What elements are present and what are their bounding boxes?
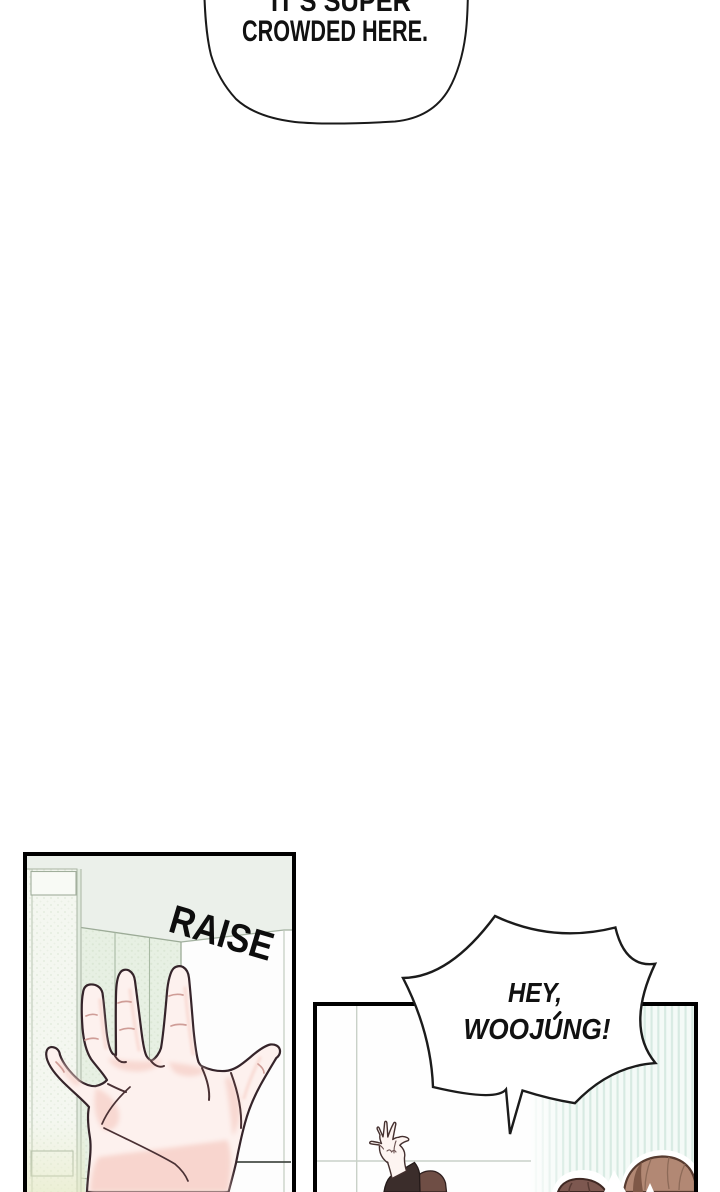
svg-text:CROWDED HERE.: CROWDED HERE. <box>242 15 428 48</box>
svg-text:WOOJUNG!: WOOJUNG! <box>464 1014 611 1046</box>
svg-text:HEY,: HEY, <box>508 977 562 1008</box>
